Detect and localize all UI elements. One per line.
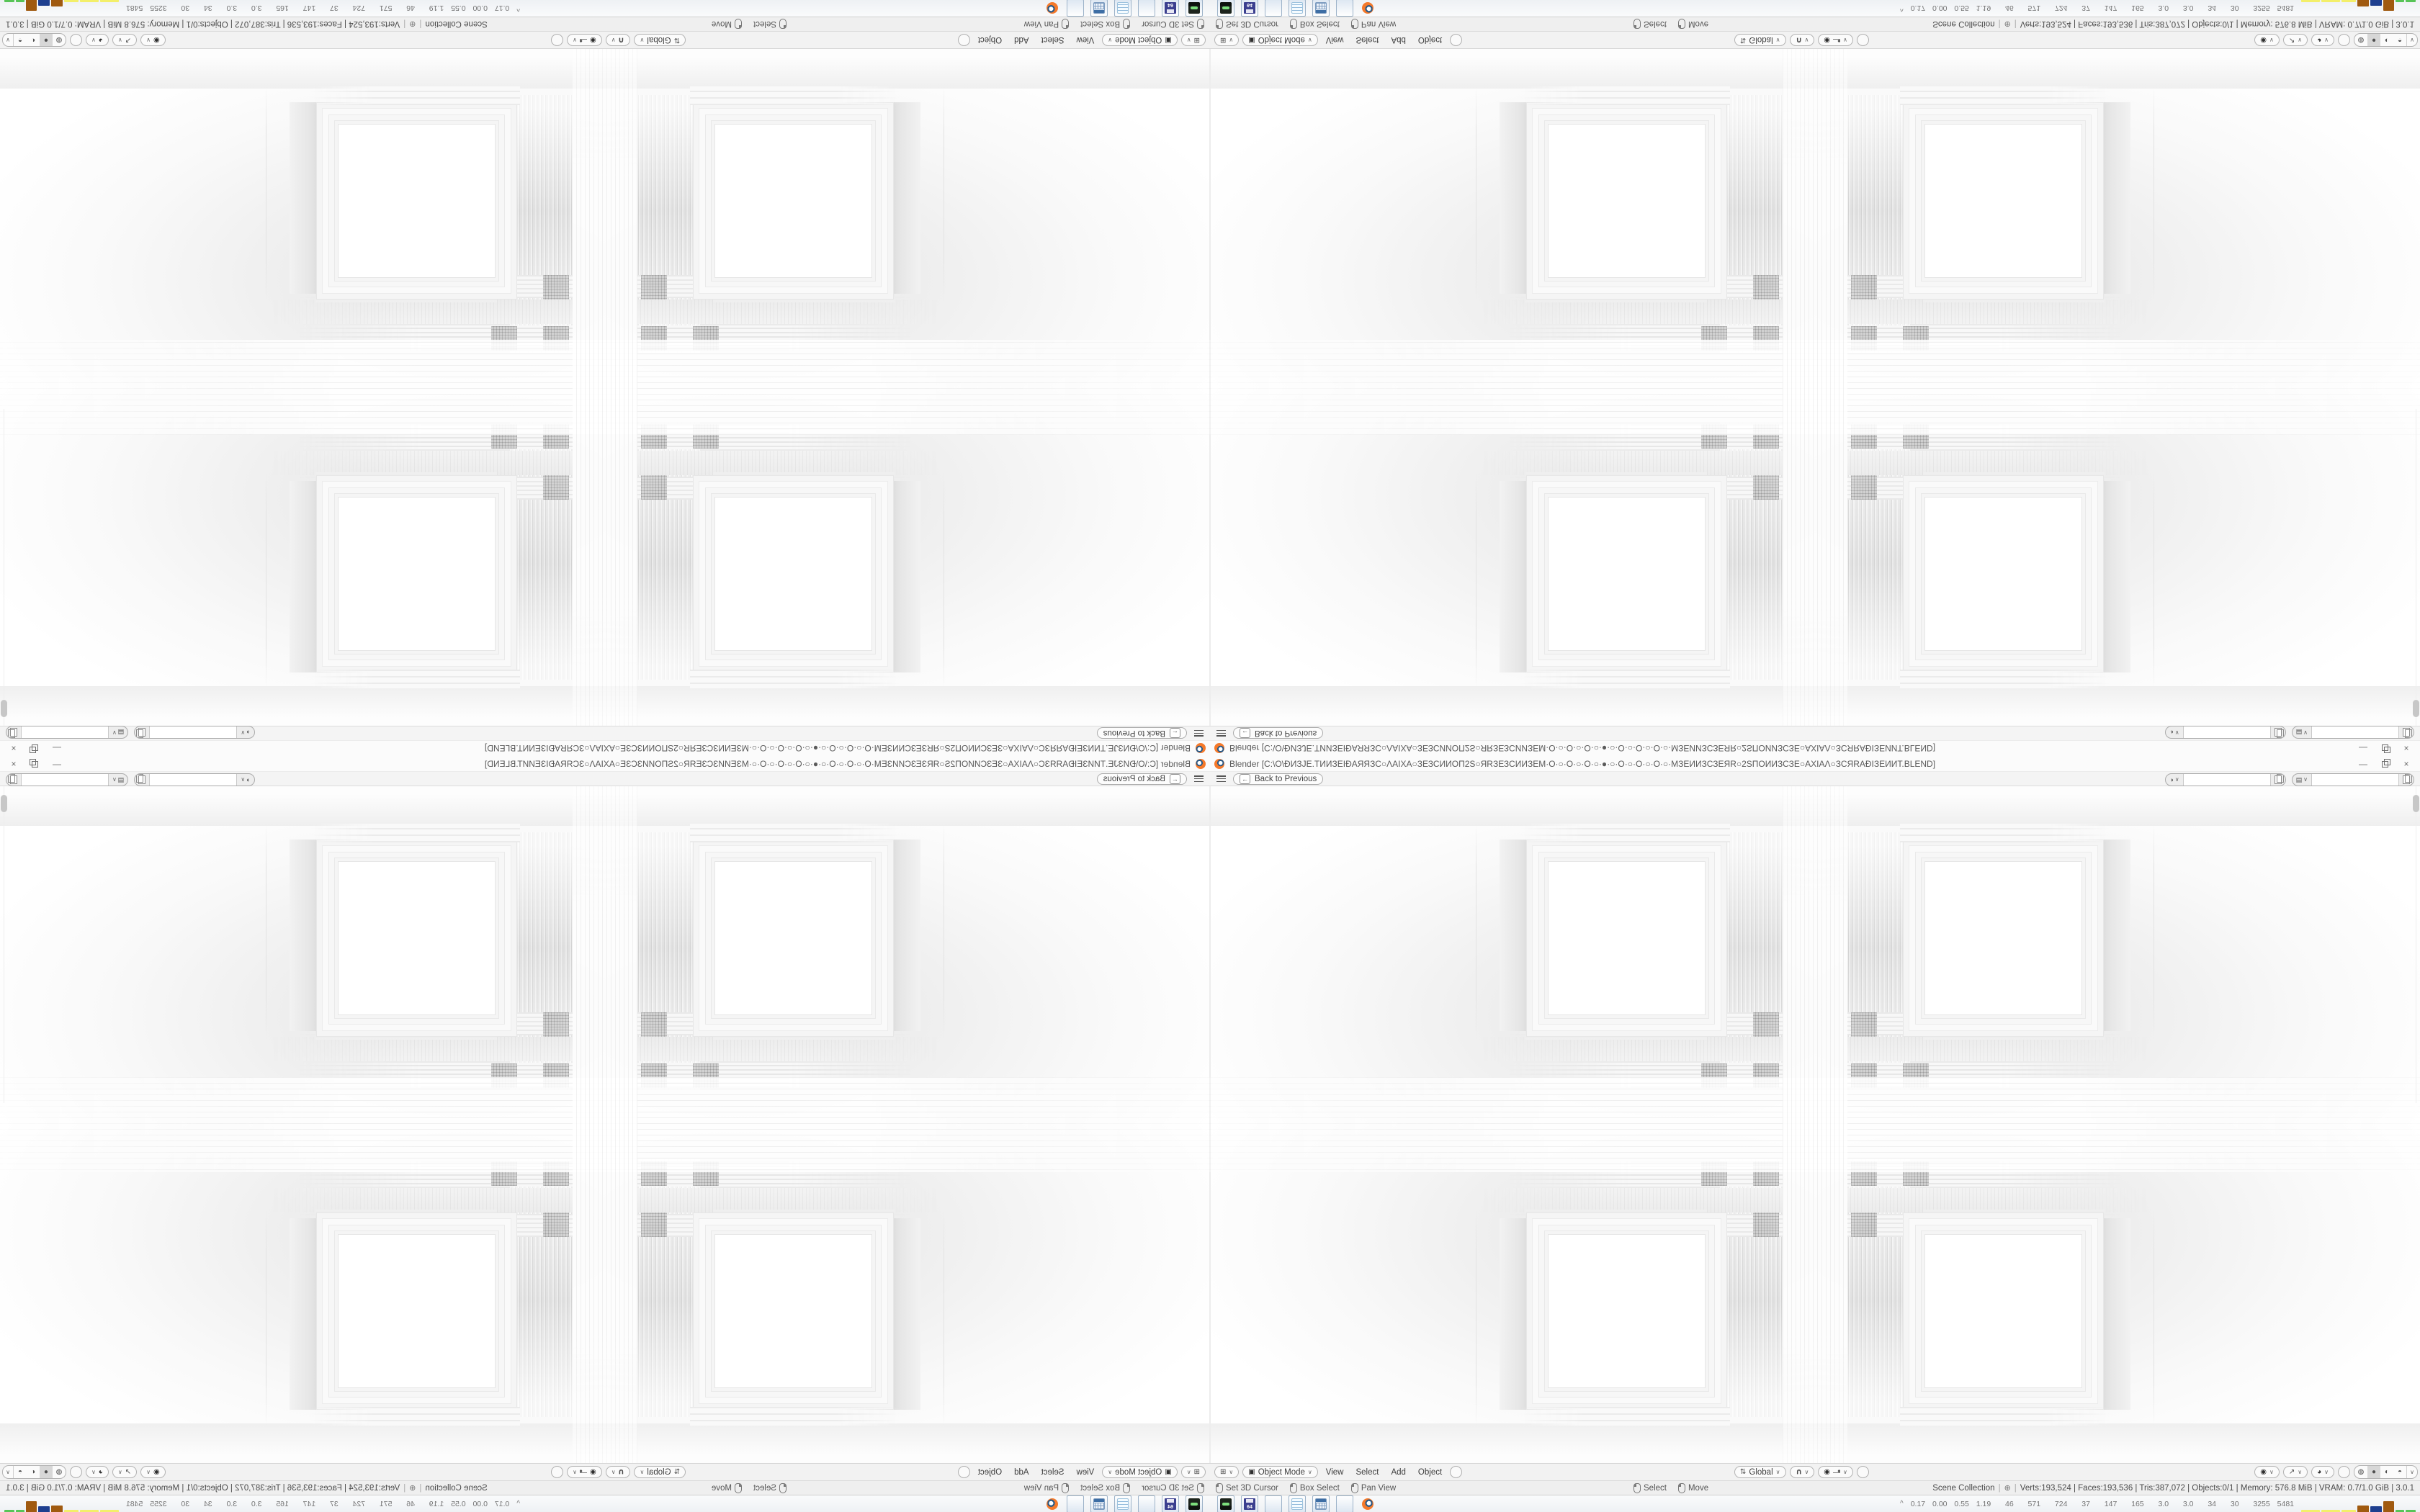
taskbar-app-dosbox[interactable]: 64 — [1241, 1495, 1258, 1512]
window-soffit-shadow — [1525, 472, 1707, 500]
window-soffit-shadow — [315, 1012, 497, 1040]
chevron-down-icon: ∨ — [2175, 729, 2179, 735]
minimize-button[interactable]: — — [2352, 757, 2374, 770]
new-viewlayer-button[interactable] — [6, 728, 21, 737]
close-button[interactable]: × — [3, 757, 24, 770]
transform-orientation-dropdown[interactable]: ⇅ Global ∨ — [635, 34, 686, 46]
taskbar-app-blender[interactable] — [1044, 1496, 1060, 1512]
transform-orientation-dropdown[interactable]: ⇅ Global ∨ — [1734, 1466, 1786, 1478]
mouse-hints-left: Set 3D Cursor Box Select Pan View — [1013, 1483, 1204, 1493]
object-mode-icon: ▣ — [1165, 1469, 1171, 1476]
overlays-icon: ↗ — [125, 37, 131, 44]
transform-orientation-dropdown[interactable]: ⇅ Global ∨ — [635, 1466, 686, 1478]
back-to-previous-button[interactable]: ← Back to Previous — [1097, 728, 1187, 739]
gizmo-toggle[interactable]: ◉ ∨ — [140, 1466, 166, 1478]
shading-rendered-button[interactable]: ◓ — [14, 34, 27, 46]
tool-circle-button[interactable] — [1450, 34, 1462, 46]
taskbar-app-firefox[interactable] — [1067, 1495, 1084, 1512]
menu-add[interactable]: Add — [1391, 36, 1405, 45]
render-preview-circle[interactable] — [70, 1466, 82, 1478]
shading-solid-button[interactable]: ● — [40, 1466, 53, 1478]
shading-material-button[interactable]: ◐ — [27, 1466, 40, 1478]
wall-edge-line — [944, 1210, 944, 1426]
restore-icon — [2382, 745, 2388, 752]
menu-view[interactable]: View — [1326, 36, 1344, 45]
status-stats: Scene Collection | ⊕ | Verts:193,524 | F… — [1932, 1483, 2414, 1493]
new-viewlayer-button[interactable] — [6, 775, 21, 784]
proportional-editing-toggle[interactable]: ◉ ∨ — [567, 1466, 602, 1478]
viewlayer-name-field[interactable] — [2311, 774, 2399, 786]
snap-toggle[interactable]: ∪ ∨ — [606, 34, 631, 46]
mouse-left-icon — [1633, 19, 1641, 30]
menu-add[interactable]: Add — [1014, 36, 1028, 45]
scene-name-field[interactable] — [2183, 726, 2271, 738]
scrollbar-thumb[interactable] — [2413, 700, 2419, 717]
game-icon — [1188, 3, 1200, 14]
tray-expand-icon[interactable]: ^ — [516, 1500, 520, 1508]
shading-solid-button[interactable]: ● — [2367, 1466, 2380, 1478]
dosbox-icon: 64 — [1244, 1498, 1255, 1510]
new-scene-button[interactable] — [135, 775, 149, 784]
menu-icon[interactable] — [1194, 730, 1204, 737]
dentil-block — [1851, 1212, 1877, 1237]
taskbar-app-firefox[interactable] — [1336, 0, 1353, 17]
taskbar-app-firefox[interactable] — [1138, 0, 1155, 17]
hint-label: Box Select — [1300, 20, 1340, 29]
mode-dropdown[interactable]: ▣ Object Mode ∨ — [1102, 34, 1178, 46]
3d-viewport[interactable] — [0, 49, 1210, 726]
object-mode-icon: ▣ — [1165, 37, 1171, 44]
taskbar-app-notepad[interactable] — [1289, 0, 1306, 17]
editor-type-button[interactable]: ⊞ ∨ — [1181, 1466, 1206, 1478]
mouse-drag-icon — [1123, 19, 1130, 30]
overlays-icon: ↗ — [2289, 37, 2295, 44]
chevron-down-icon: ∨ — [1804, 37, 1809, 43]
proportional-editing-toggle[interactable]: ◉ ∨ — [1818, 1466, 1853, 1478]
taskbar-app-dosbox[interactable]: 64 — [1241, 0, 1258, 17]
facade-bay-br — [0, 1125, 605, 1463]
menu-add[interactable]: Add — [1391, 1468, 1405, 1477]
chevron-down-icon: ∨ — [2410, 1470, 2414, 1475]
editor-type-button[interactable]: ⊞ ∨ — [1214, 1466, 1239, 1478]
scene-name-field[interactable] — [149, 774, 237, 786]
viewport-editor-icon: ⊞ — [1194, 37, 1200, 44]
scrollbar-thumb[interactable] — [1, 795, 7, 812]
taskbar-app-game[interactable] — [1217, 0, 1234, 17]
tray-bar — [38, 1, 50, 6]
window-jamb-shadow — [871, 1218, 920, 1410]
hint-pan-view: Pan View — [1351, 1483, 1396, 1493]
facade-bay-bl — [605, 1125, 1210, 1463]
menu-select[interactable]: Select — [1041, 36, 1065, 45]
orientation-label: Global — [647, 1468, 671, 1477]
windows-taskbar: 64 ^ 0.17 0.00 0.55 1.19 46 571 724 37 1… — [0, 0, 1210, 17]
shading-wireframe-button[interactable]: ◍ — [2354, 34, 2367, 46]
window-sill-steps — [1520, 86, 1730, 105]
shading-solid-button[interactable]: ● — [40, 34, 53, 46]
taskbar-app-notepad[interactable] — [1114, 0, 1131, 17]
shading-material-button[interactable]: ◐ — [2380, 34, 2393, 46]
shading-dropdown[interactable]: ∨ — [3, 34, 14, 46]
scene-selector[interactable]: ◑ ∨ — [2165, 726, 2285, 739]
facade-bay-bl — [1210, 1125, 1815, 1463]
magnet-icon: ∪ — [619, 35, 625, 45]
mode-label: Object Mode — [1258, 1468, 1305, 1477]
3d-viewport[interactable] — [1210, 786, 2420, 1463]
proportional-circle-button[interactable] — [551, 34, 563, 46]
mode-dropdown[interactable]: ▣ Object Mode ∨ — [1242, 34, 1318, 46]
shading-rendered-button[interactable]: ◓ — [14, 1466, 27, 1478]
mouse-hints-middle: Select Move — [1633, 19, 1720, 30]
dentil-block — [641, 275, 667, 300]
hint-select: Select — [1633, 19, 1667, 30]
xray-toggle[interactable]: ◕ ∨ — [2311, 1466, 2334, 1478]
editor-type-button[interactable]: ⊞ ∨ — [1181, 34, 1206, 46]
tray-bar — [16, 1, 24, 3]
tray-bar — [2406, 1, 2416, 3]
tray-bar — [26, 1501, 37, 1512]
mouse-drag-icon — [735, 1483, 742, 1493]
falloff-icon — [580, 37, 587, 42]
hint-label: Select — [1644, 1484, 1667, 1493]
restore-button[interactable] — [24, 742, 46, 755]
taskbar-app-dosbox[interactable]: 64 — [1162, 1495, 1179, 1512]
xray-toggle[interactable]: ◕ ∨ — [86, 1466, 109, 1478]
facade-bay-tr — [1815, 786, 2420, 1125]
proportional-circle-button[interactable] — [1857, 34, 1869, 46]
window-sill-steps — [1520, 670, 1730, 688]
scrollbar-thumb[interactable] — [2413, 795, 2419, 812]
new-scene-button[interactable] — [2271, 775, 2285, 784]
copy-icon — [2275, 775, 2282, 784]
gizmo-toggle[interactable]: ◉ ∨ — [2254, 34, 2280, 46]
shading-rendered-button[interactable]: ◓ — [2393, 34, 2406, 46]
tray-expand-icon[interactable]: ^ — [516, 4, 520, 12]
tray-bar — [4, 1, 14, 3]
taskbar-app-calculator[interactable] — [1312, 0, 1330, 17]
header-right-group: ◉ ∨ ↗ ∨ ◕ ∨ ◍ ● ◐ ◓ ∨ — [2, 33, 166, 47]
overlays-toggle[interactable]: ↗ ∨ — [112, 34, 137, 46]
tool-circle-button[interactable] — [1450, 1466, 1462, 1478]
viewlayer-name-field[interactable] — [21, 774, 109, 786]
xray-icon: ◕ — [99, 1469, 103, 1476]
titlebar: Blender [C:\O\ĐИЗЈЕ.ТИИЗЕІĐАЯЯЗС○ΛАІХА○З… — [0, 740, 1210, 756]
menu-select[interactable]: Select — [1355, 1468, 1379, 1477]
taskbar-app-notepad[interactable] — [1114, 1495, 1131, 1512]
facade-center-pier — [1783, 786, 1847, 1463]
close-button[interactable]: × — [2396, 742, 2417, 755]
scene-icon: ◑ ∨ — [2166, 729, 2182, 736]
taskbar-app-game[interactable] — [1186, 1495, 1203, 1512]
mouse-hints-middle: Select Move — [1633, 1483, 1720, 1493]
menu-icon[interactable] — [1216, 730, 1226, 737]
scene-selector[interactable]: ◑ ∨ — [134, 773, 254, 786]
object-mode-icon: ▣ — [1248, 37, 1255, 44]
shading-dropdown[interactable]: ∨ — [3, 1466, 14, 1478]
render-preview-circle[interactable] — [70, 34, 82, 46]
snap-toggle[interactable]: ∪ ∨ — [1790, 34, 1815, 46]
taskbar-app-calculator[interactable] — [1090, 1495, 1108, 1512]
shading-material-button[interactable]: ◐ — [2380, 1466, 2393, 1478]
menu-object[interactable]: Object — [978, 1468, 1002, 1477]
restore-button[interactable] — [24, 757, 46, 770]
entablature-band — [256, 1188, 573, 1212]
window-jamb-shadow — [290, 840, 339, 1031]
taskbar-app-blender[interactable] — [1044, 1, 1060, 17]
menu-select[interactable]: Select — [1355, 36, 1379, 45]
taskbar-app-firefox[interactable] — [1265, 0, 1282, 17]
back-to-previous-button[interactable]: ← Back to Previous — [1097, 773, 1187, 785]
xray-toggle[interactable]: ◕ ∨ — [86, 34, 109, 46]
tool-circle-button[interactable] — [958, 34, 970, 46]
minimize-button[interactable]: — — [46, 757, 68, 770]
status-bar: Set 3D Cursor Box Select Pan View Select — [1210, 1480, 2420, 1495]
hint-pan-view: Pan View — [1351, 19, 1396, 30]
minimize-button[interactable]: — — [2352, 742, 2374, 755]
taskbar-app-calculator[interactable] — [1312, 1495, 1330, 1512]
header-right-group: ◉ ∨ ↗ ∨ ◕ ∨ ◍ ● ◐ ◓ ∨ — [2254, 1465, 2418, 1479]
mouse-left-icon — [1633, 1483, 1641, 1493]
menu-view[interactable]: View — [1077, 1468, 1095, 1477]
overlays-toggle[interactable]: ↗ ∨ — [2283, 34, 2308, 46]
chevron-down-icon: ∨ — [1229, 1470, 1233, 1475]
proportional-editing-toggle[interactable]: ◉ ∨ — [567, 34, 602, 46]
status-stats: Scene Collection | ⊕ | Verts:193,524 | F… — [6, 1483, 488, 1493]
menu-object[interactable]: Object — [1418, 1468, 1442, 1477]
entablature-band — [1466, 300, 1783, 324]
tray-bar — [100, 1, 119, 3]
titlebar: Blender [C:\O\ĐИЗЈЕ.ТИИЗЕІĐАЯЯЗС○ΛАІХА○З… — [1210, 756, 2420, 772]
header-middle-group: ⇅ Global ∨ ∪ ∨ ◉ ∨ — [551, 1466, 686, 1478]
copy-icon — [138, 775, 145, 784]
mirrored-screens-grid: Blender [C:\O\ĐИЗЈЕ.ТИИЗЕІĐАЯЯЗС○ΛАІХА○З… — [0, 0, 2420, 1512]
shading-mode-group: ◍ ● ◐ ◓ ∨ — [2, 33, 66, 47]
menu-icon[interactable] — [1216, 775, 1226, 782]
tray-bar — [2357, 1506, 2369, 1512]
window-jamb-shadow — [871, 481, 920, 672]
menu-add[interactable]: Add — [1014, 1468, 1028, 1477]
menu-icon[interactable] — [1194, 775, 1204, 782]
taskbar-app-game[interactable] — [1186, 0, 1203, 17]
menu-object[interactable]: Object — [978, 36, 1002, 45]
minimize-button[interactable]: — — [46, 742, 68, 755]
notepad-icon — [1117, 1498, 1129, 1510]
viewlayer-selector[interactable]: ▤ ∨ — [2292, 726, 2414, 739]
restore-button[interactable] — [2374, 742, 2396, 755]
tray-chart — [2301, 1, 2416, 17]
shading-dropdown[interactable]: ∨ — [2406, 1466, 2417, 1478]
scene-selector[interactable]: ◑ ∨ — [2165, 773, 2285, 786]
window-opening — [339, 125, 495, 277]
new-viewlayer-button[interactable] — [2399, 728, 2414, 737]
window-sill-steps — [310, 86, 520, 105]
mouse-left-icon — [1197, 19, 1204, 30]
window-sill-steps — [310, 824, 520, 842]
viewlayer-selector[interactable]: ▤ ∨ — [2292, 773, 2414, 786]
new-viewlayer-button[interactable] — [2399, 775, 2414, 784]
topbar-selectors: ◑ ∨ ▤ ∨ — [2165, 773, 2414, 786]
hint-pan-view: Pan View — [1024, 19, 1069, 30]
hint-label: Set 3D Cursor — [1142, 1484, 1194, 1493]
quadrant-bl: Blender [C:\O\ĐИЗЈЕ.ТИИЗЕІĐАЯЯЗС○ΛАІХА○З… — [0, 756, 1210, 1512]
hint-label: Move — [1688, 20, 1708, 29]
xray-icon: ◕ — [2317, 37, 2321, 44]
scene-selector[interactable]: ◑ ∨ — [134, 726, 254, 739]
render-preview-circle[interactable] — [2338, 34, 2350, 46]
proportional-circle-button[interactable] — [551, 1466, 563, 1478]
taskbar-app-firefox[interactable] — [1265, 1495, 1282, 1512]
shading-material-button[interactable]: ◐ — [27, 34, 40, 46]
scene-collection-label: Scene Collection — [1932, 20, 1994, 29]
firefox-icon — [1070, 1498, 1081, 1510]
shading-solid-button[interactable]: ● — [2367, 34, 2380, 46]
scene-name-field[interactable] — [149, 726, 237, 738]
taskbar-app-blender[interactable] — [1360, 1, 1376, 17]
window-jamb-shadow — [2081, 102, 2130, 294]
viewlayer-name-field[interactable] — [21, 726, 109, 738]
taskbar-app-firefox[interactable] — [1336, 1495, 1353, 1512]
dosbox-icon: 64 — [1244, 3, 1255, 14]
tray-bar — [2341, 1510, 2356, 1512]
taskbar-app-firefox[interactable] — [1138, 1495, 1155, 1512]
mouse-drag-icon — [1678, 19, 1685, 30]
shading-wireframe-button[interactable]: ◍ — [53, 34, 66, 46]
window-opening — [715, 125, 871, 277]
mouse-middle-icon — [1351, 1483, 1358, 1493]
mouse-left-icon — [779, 1483, 786, 1493]
blender-topbar: ← Back to Previous ◑ ∨ ▤ ∨ — [0, 726, 1210, 740]
notepad-icon — [1291, 3, 1303, 14]
gizmo-toggle[interactable]: ◉ ∨ — [140, 34, 166, 46]
shading-wireframe-button[interactable]: ◍ — [53, 1466, 66, 1478]
mode-dropdown[interactable]: ▣ Object Mode ∨ — [1102, 1466, 1178, 1478]
tray-bar — [2370, 1, 2382, 6]
editor-type-button[interactable]: ⊞ ∨ — [1214, 34, 1239, 46]
scene-icon: ◑ ∨ — [237, 729, 254, 736]
shading-mode-group: ◍ ● ◐ ◓ ∨ — [2, 1465, 66, 1479]
facade-center-pier — [1783, 49, 1847, 726]
overlays-toggle[interactable]: ↗ ∨ — [2283, 1466, 2308, 1478]
transform-orientation-dropdown[interactable]: ⇅ Global ∨ — [1734, 34, 1786, 46]
mode-label: Object Mode — [1115, 1468, 1162, 1477]
proportional-circle-button[interactable] — [1857, 1466, 1869, 1478]
window-opening — [1549, 125, 1705, 277]
new-scene-button[interactable] — [135, 728, 149, 737]
hint-label: Pan View — [1024, 1484, 1059, 1493]
viewlayer-selector[interactable]: ▤ ∨ — [6, 773, 128, 786]
viewlayer-selector[interactable]: ▤ ∨ — [6, 726, 128, 739]
shading-dropdown[interactable]: ∨ — [2406, 34, 2417, 46]
status-bar: Set 3D Cursor Box Select Pan View Select — [0, 17, 1210, 32]
close-button[interactable]: × — [3, 742, 24, 755]
hint-label: Move — [712, 20, 732, 29]
firefox-icon — [1339, 3, 1350, 14]
window-soffit-shadow — [713, 1210, 895, 1237]
xray-toggle[interactable]: ◕ ∨ — [2311, 34, 2334, 46]
viewport-header: ⊞ ∨ ▣ Object Mode ∨ View Select Add Obje… — [0, 32, 1210, 49]
mode-dropdown[interactable]: ▣ Object Mode ∨ — [1242, 1466, 1318, 1478]
hint-box-select: Box Select — [1080, 1483, 1130, 1493]
viewlayer-name-field[interactable] — [2311, 726, 2399, 738]
blender-logo-icon — [1214, 759, 1224, 769]
close-button[interactable]: × — [2396, 757, 2417, 770]
shading-wireframe-button[interactable]: ◍ — [2354, 1466, 2367, 1478]
hint-select: Select — [753, 19, 786, 30]
shading-rendered-button[interactable]: ◓ — [2393, 1466, 2406, 1478]
header-left-group: ⊞ ∨ ▣ Object Mode ∨ View Select Add Obje… — [958, 34, 1206, 46]
taskbar-apps: 64 — [1044, 0, 1203, 17]
window-jamb-shadow — [2081, 1218, 2130, 1410]
window-controls: — × — [3, 740, 68, 756]
back-to-previous-button[interactable]: ← Back to Previous — [1233, 728, 1323, 739]
window-sill-steps — [690, 670, 900, 688]
dentil-block — [1753, 1212, 1779, 1237]
tool-circle-button[interactable] — [958, 1466, 970, 1478]
window-sill-steps — [1900, 824, 2110, 842]
gizmo-toggle[interactable]: ◉ ∨ — [2254, 1466, 2280, 1478]
menu-view[interactable]: View — [1077, 36, 1095, 45]
proportional-editing-toggle[interactable]: ◉ ∨ — [1818, 34, 1853, 46]
taskbar-app-calculator[interactable] — [1090, 0, 1108, 17]
chevron-down-icon: ∨ — [146, 37, 151, 43]
taskbar-app-dosbox[interactable]: 64 — [1162, 0, 1179, 17]
window-jamb-shadow — [1500, 1218, 1549, 1410]
tray-bar — [64, 1510, 79, 1512]
window-sill-steps — [1520, 824, 1730, 842]
scrollbar-thumb[interactable] — [1, 700, 7, 717]
proportional-icon: ◉ — [1824, 1469, 1830, 1476]
render-preview-circle[interactable] — [2338, 1466, 2350, 1478]
overlays-icon: ↗ — [125, 1469, 131, 1476]
chevron-down-icon: ∨ — [2303, 777, 2308, 783]
chevron-down-icon: ∨ — [2269, 1470, 2274, 1475]
new-scene-button[interactable] — [2271, 728, 2285, 737]
separator: | — [403, 20, 405, 29]
entablature-band — [637, 300, 954, 324]
taskbar-app-game[interactable] — [1217, 1495, 1234, 1512]
menu-view[interactable]: View — [1326, 1468, 1344, 1477]
tray-expand-icon[interactable]: ^ — [1900, 1500, 1904, 1508]
calculator-icon — [1315, 3, 1327, 14]
calculator-icon — [1093, 1498, 1105, 1510]
3d-viewport[interactable] — [1210, 49, 2420, 726]
window-sill-steps — [1520, 1407, 1730, 1426]
tray-expand-icon[interactable]: ^ — [1900, 4, 1904, 12]
window-jamb-shadow — [290, 1218, 339, 1410]
menu-select[interactable]: Select — [1041, 1468, 1065, 1477]
chevron-down-icon: ∨ — [573, 37, 577, 43]
snap-toggle[interactable]: ∪ ∨ — [606, 1466, 631, 1478]
taskbar-app-firefox[interactable] — [1067, 0, 1084, 17]
hint-label: Select — [753, 1484, 776, 1493]
chevron-down-icon: ∨ — [2298, 37, 2302, 43]
entablature-band — [1847, 1188, 2164, 1212]
mouse-drag-icon — [1290, 19, 1297, 30]
taskbar-app-blender[interactable] — [1360, 1496, 1376, 1512]
menu-object[interactable]: Object — [1418, 36, 1442, 45]
back-to-previous-button[interactable]: ← Back to Previous — [1233, 773, 1323, 785]
taskbar-app-notepad[interactable] — [1289, 1495, 1306, 1512]
3d-viewport[interactable] — [0, 786, 1210, 1463]
restore-button[interactable] — [2374, 757, 2396, 770]
window-soffit-shadow — [713, 1012, 895, 1040]
snap-toggle[interactable]: ∪ ∨ — [1790, 1466, 1815, 1478]
scene-name-field[interactable] — [2183, 774, 2271, 786]
wall-edge-line — [266, 86, 266, 302]
overlays-toggle[interactable]: ↗ ∨ — [112, 1466, 137, 1478]
proportional-icon: ◉ — [590, 1469, 596, 1476]
firefox-icon — [1141, 3, 1152, 14]
